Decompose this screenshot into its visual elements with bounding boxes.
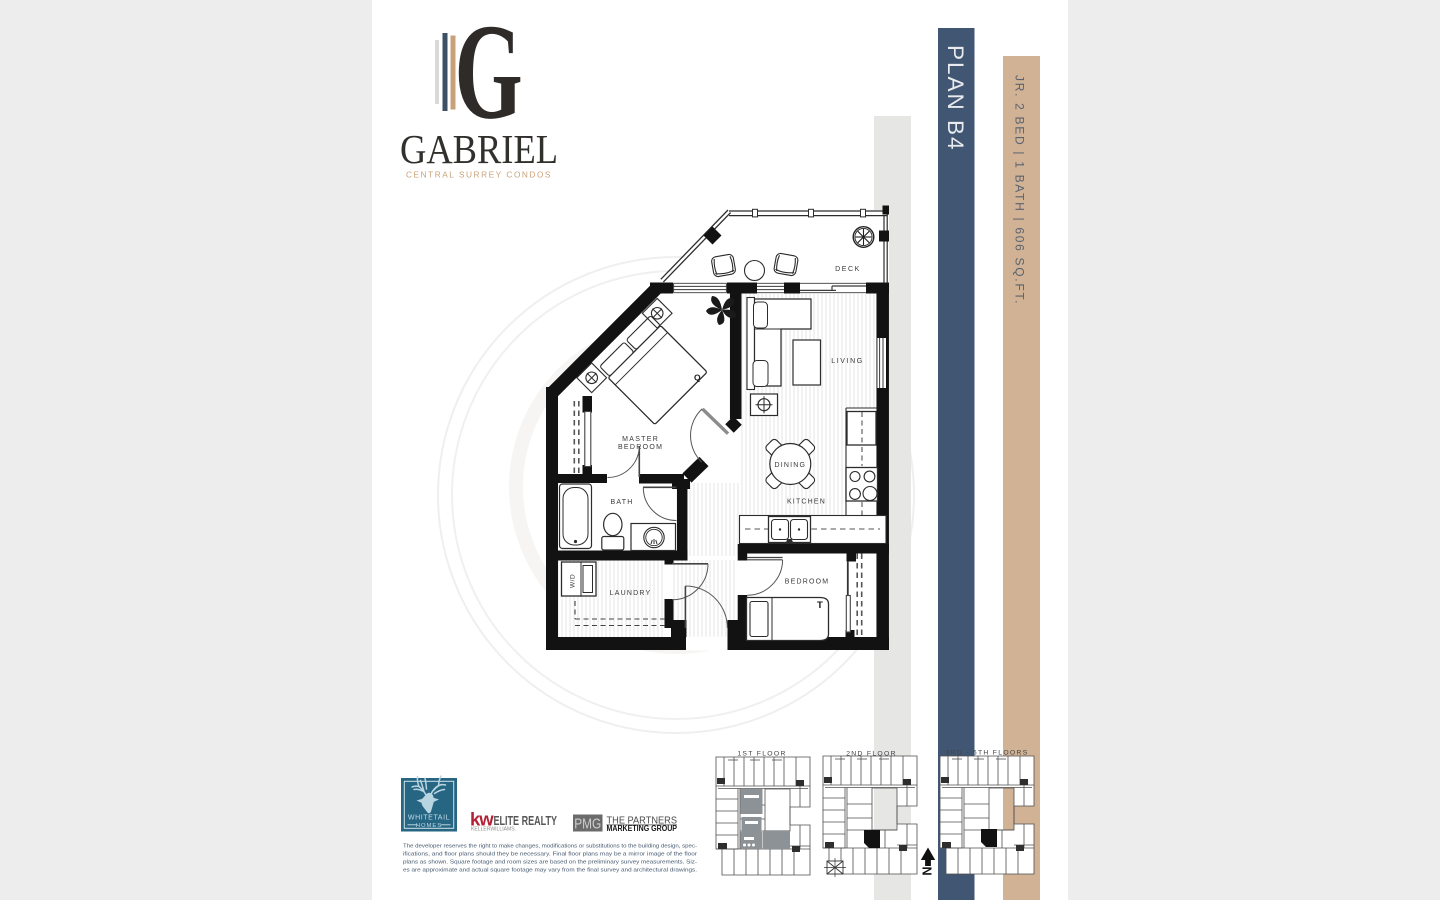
svg-text:MARKETING GROUP: MARKETING GROUP: [607, 823, 678, 833]
svg-text:LAUNDRY: LAUNDRY: [610, 590, 652, 597]
svg-text:BEDROOM: BEDROOM: [618, 444, 663, 451]
svg-text:plans as shown. Square footage: plans as shown. Square footage and room …: [403, 860, 697, 866]
svg-text:PMG: PMG: [574, 817, 601, 833]
svg-text:es are approximate and actual: es are approximate and actual square foo…: [403, 868, 697, 874]
svg-text:N: N: [920, 867, 934, 876]
svg-text:T: T: [817, 600, 823, 611]
svg-text:3RD - 6TH FLOORS: 3RD - 6TH FLOORS: [945, 750, 1028, 757]
svg-text:BATH: BATH: [611, 499, 634, 506]
svg-text:W/D: W/D: [570, 574, 577, 588]
svg-text:GABRIEL: GABRIEL: [400, 126, 558, 172]
svg-text:WHITETAIL: WHITETAIL: [408, 814, 450, 821]
svg-text:ifications, and floor plans sh: ifications, and floor plans should they …: [403, 852, 697, 858]
svg-text:BEDROOM: BEDROOM: [785, 579, 830, 586]
svg-text:CENTRAL SURREY CONDOS: CENTRAL SURREY CONDOS: [406, 171, 552, 180]
svg-text:MASTER: MASTER: [622, 436, 659, 443]
svg-text:KITCHEN: KITCHEN: [787, 499, 826, 506]
svg-text:Q: Q: [694, 373, 701, 383]
svg-text:The developer reserves the rig: The developer reserves the right to make…: [403, 844, 697, 850]
svg-text:PLAN B4: PLAN B4: [943, 45, 968, 152]
svg-text:HOMES: HOMES: [416, 823, 442, 829]
svg-text:JR. 2 BED | 1 BATH | 606 SQ.FT: JR. 2 BED | 1 BATH | 606 SQ.FT.: [1013, 75, 1027, 305]
svg-text:DECK: DECK: [835, 266, 861, 273]
svg-text:1ST FLOOR: 1ST FLOOR: [737, 751, 786, 758]
svg-text:DINING: DINING: [774, 462, 806, 469]
svg-text:KELLERWILLIAMS.: KELLERWILLIAMS.: [471, 827, 516, 833]
svg-text:LIVING: LIVING: [831, 358, 864, 365]
